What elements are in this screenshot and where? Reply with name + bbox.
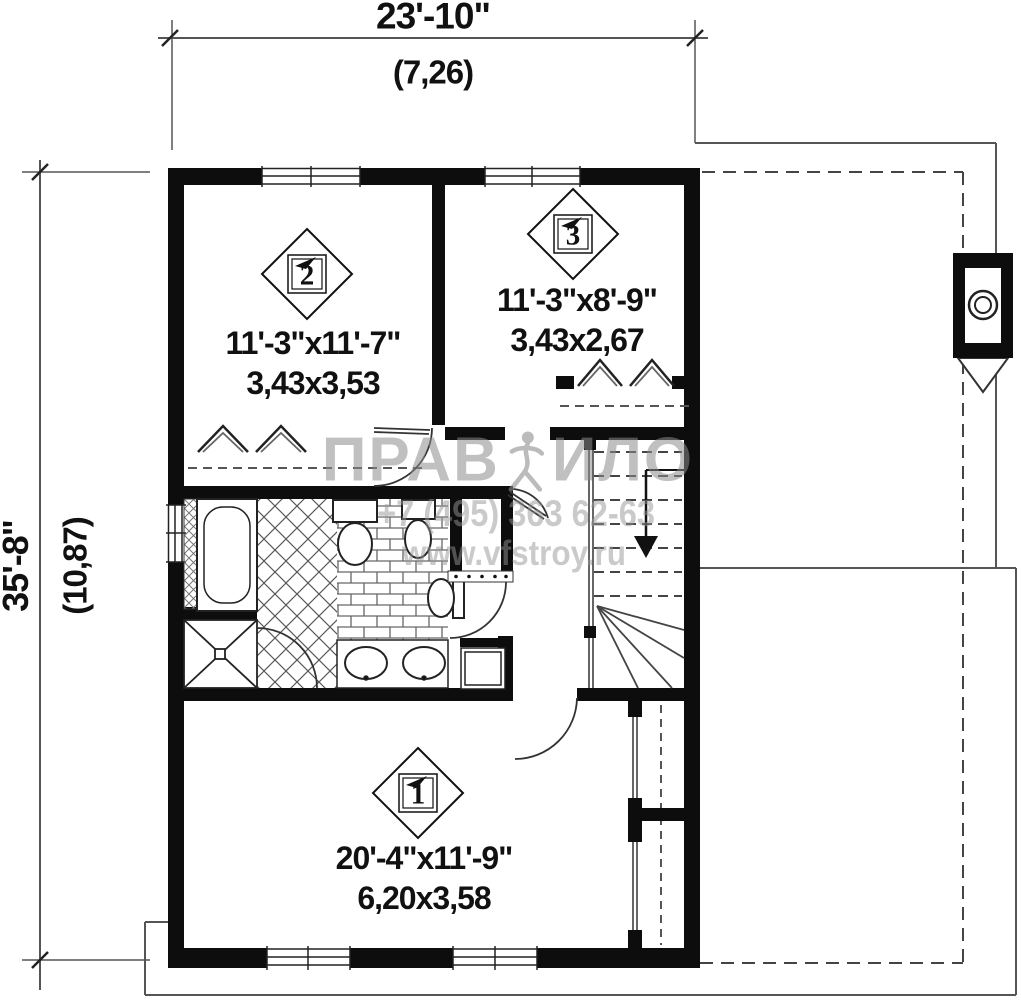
door-sill [448, 571, 513, 582]
room1-size-imperial: 20'-4"x11'-9" [336, 842, 513, 874]
door-room3 [508, 489, 548, 519]
room1-size-metric: 6,20x3,58 [357, 882, 490, 914]
stair-direction-arrow [634, 470, 690, 558]
stair-treads [594, 452, 682, 596]
room3-size-imperial: 11'-3"x8'-9" [497, 284, 657, 316]
room3-size-metric: 3,43x2,67 [510, 324, 643, 356]
closet-chevrons-room3 [578, 360, 674, 386]
window-top-1 [262, 166, 360, 187]
bathtub [197, 499, 257, 611]
door-room2 [374, 428, 432, 486]
stairs [584, 437, 690, 688]
vanity-counter [337, 640, 448, 688]
left-dimension-imperial: 35'-8" [0, 520, 34, 612]
linen-closet [461, 648, 505, 689]
shower-tile-area [257, 499, 337, 688]
door-room1 [515, 698, 577, 759]
toilet-3 [428, 578, 464, 618]
bathroom-fixtures [184, 499, 513, 689]
left-dimension-metric: (10,87) [59, 517, 92, 615]
tile-strip [184, 499, 197, 609]
top-dimension-metric: (7,26) [393, 56, 473, 89]
window-bottom-1 [267, 946, 350, 970]
room2-size-metric: 3,43x3,53 [246, 367, 379, 399]
top-dimension-imperial: 23'-10" [376, 0, 490, 35]
closet-chevrons-room2 [198, 426, 306, 452]
window-top-2 [485, 166, 580, 187]
room2-size-imperial: 11'-3"x11'-7" [226, 327, 401, 359]
room3-number: 3 [566, 222, 581, 251]
floor-plan-page: 23'-10" (7,26) 35'-8" (10,87) 2 11'-3"x1… [0, 0, 1021, 1000]
room2-number: 2 [300, 262, 315, 291]
shower-stall [184, 620, 257, 688]
stair-winders [597, 606, 684, 688]
room1-closet-strip [628, 701, 685, 948]
window-bottom-2 [453, 946, 537, 970]
room1-number: 1 [411, 781, 426, 810]
window-left [166, 505, 186, 562]
